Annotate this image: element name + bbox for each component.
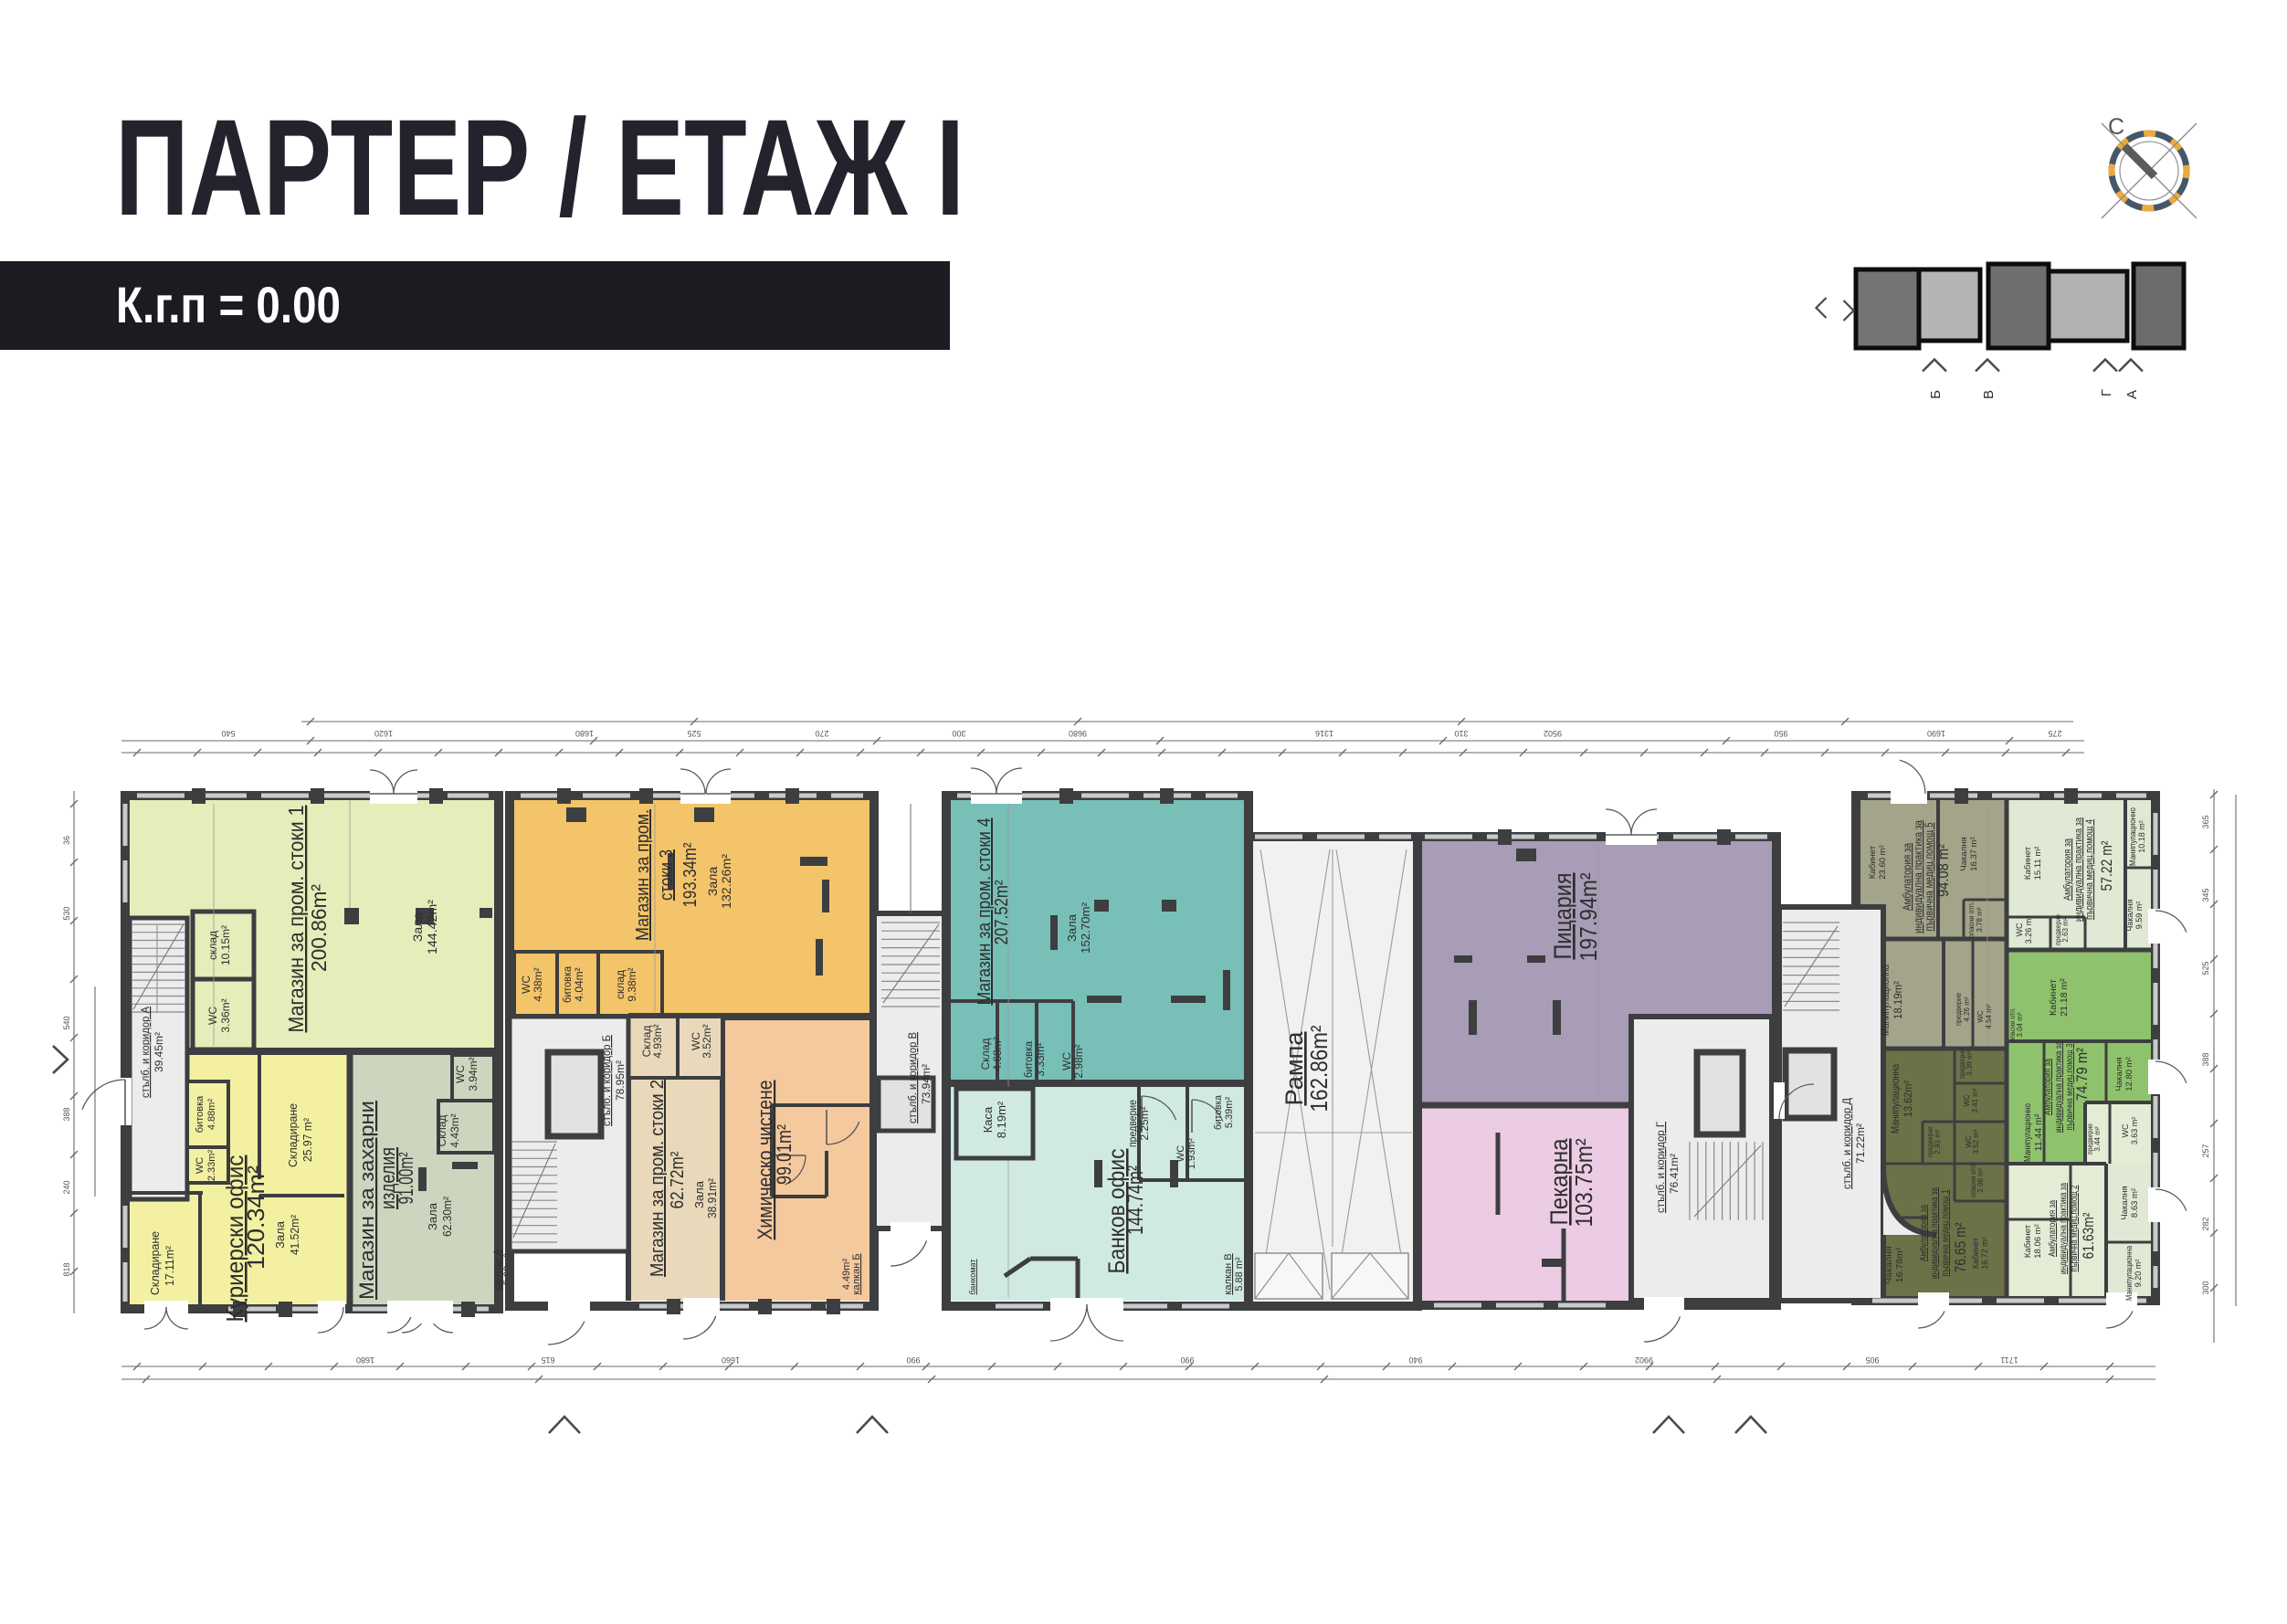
svg-text:300: 300 [2201, 1281, 2210, 1294]
svg-text:3.41 m²: 3.41 m² [1971, 1088, 1979, 1113]
svg-text:17.11m²: 17.11m² [163, 1245, 176, 1286]
svg-text:Б: Б [1928, 390, 1944, 399]
svg-text:61.63m²: 61.63m² [2080, 1212, 2097, 1259]
svg-text:WC: WC [1976, 1010, 1985, 1023]
svg-text:калкан Б: калкан Б [851, 1253, 862, 1294]
svg-text:Складиране: Складиране [148, 1231, 162, 1295]
svg-text:Рампа: Рампа [1281, 1031, 1308, 1106]
svg-text:Пекарна: Пекарна [1545, 1138, 1573, 1226]
svg-text:530: 530 [62, 906, 71, 920]
svg-text:16.72 m²: 16.72 m² [1980, 1237, 1989, 1270]
svg-text:индивидуална практика за: индивидуална практика за [2059, 1183, 2069, 1274]
svg-text:9.59 m²: 9.59 m² [2134, 902, 2144, 930]
svg-text:3.78 m²: 3.78 m² [1976, 907, 1984, 932]
svg-text:Зала: Зала [692, 1180, 706, 1208]
svg-text:270: 270 [815, 729, 828, 738]
svg-text:Г: Г [2099, 389, 2114, 396]
svg-text:94.08 m²: 94.08 m² [1934, 844, 1952, 897]
svg-text:Манипулационна: Манипулационна [1889, 1064, 1902, 1134]
svg-text:78.95m²: 78.95m² [614, 1060, 627, 1101]
svg-text:Кабинет: Кабинет [1971, 1238, 1980, 1269]
svg-text:540: 540 [62, 1016, 71, 1029]
svg-text:240: 240 [62, 1180, 71, 1194]
svg-text:стълб. и коридор А: стълб. и коридор А [139, 1007, 152, 1098]
svg-text:индивидуална практика за: индивидуална практика за [1913, 819, 1924, 933]
svg-text:К.г.п = 0.00: К.г.п = 0.00 [116, 276, 341, 333]
svg-text:Магазин за пром.: Магазин за пром. [633, 809, 653, 941]
svg-text:индивидуална практика за: индивидуална практика за [2054, 1041, 2064, 1133]
svg-text:WC: WC [1963, 1094, 1971, 1107]
svg-text:Магазин за пром. стоки 1: Магазин за пром. стоки 1 [284, 806, 308, 1033]
svg-text:индивидуална практика за: индивидуална практика за [1930, 1187, 1940, 1279]
svg-text:345: 345 [2201, 888, 2210, 902]
svg-text:10.15m²: 10.15m² [219, 925, 232, 965]
svg-text:74.79 m²: 74.79 m² [2073, 1048, 2091, 1101]
svg-text:ПАРТЕР / ЕТАЖ I: ПАРТЕР / ЕТАЖ I [115, 90, 964, 244]
svg-text:стълб. и коридор Д: стълб. и коридор Д [1840, 1098, 1853, 1189]
svg-text:12.80 m²: 12.80 m² [2124, 1057, 2134, 1091]
svg-text:193.34m²: 193.34m² [680, 842, 701, 907]
svg-text:първична медиц.помощ 4: първична медиц.помощ 4 [2084, 819, 2095, 920]
svg-text:WC: WC [2121, 1123, 2130, 1137]
svg-text:Амбулатория за: Амбулатория за [2042, 1059, 2053, 1115]
svg-text:4.43m²: 4.43m² [448, 1113, 461, 1147]
svg-text:4.38m²: 4.38m² [532, 967, 544, 1001]
svg-text:Чакалня: Чакалня [2114, 1057, 2124, 1091]
svg-text:91.00m²: 91.00m² [395, 1153, 417, 1205]
svg-text:300: 300 [952, 729, 965, 738]
svg-text:310: 310 [1454, 729, 1468, 738]
svg-text:битовка: битовка [561, 966, 574, 1003]
svg-text:3.52m²: 3.52m² [701, 1024, 713, 1058]
svg-text:Склад: Склад [979, 1039, 992, 1070]
svg-text:предверие: предверие [1955, 993, 1963, 1026]
svg-text:62.30m²: 62.30m² [440, 1196, 454, 1237]
svg-text:WC: WC [206, 1007, 219, 1025]
svg-text:73.94m²: 73.94m² [920, 1064, 933, 1104]
svg-text:WC: WC [1175, 1145, 1186, 1162]
svg-text:3.26 m²: 3.26 m² [2024, 916, 2033, 944]
svg-text:3.33m²: 3.33m² [1034, 1042, 1047, 1076]
svg-text:144.74m²: 144.74m² [1123, 1165, 1148, 1235]
svg-text:битовка: битовка [1213, 1094, 1224, 1130]
svg-text:Манипулационно: Манипулационно [2128, 807, 2137, 866]
svg-text:Амбулатория за: Амбулатория за [2062, 838, 2073, 901]
svg-text:36: 36 [62, 836, 71, 845]
svg-text:990: 990 [906, 1355, 920, 1365]
svg-text:Чакалня: Чакалня [1883, 1246, 1894, 1283]
svg-text:4.88m²: 4.88m² [206, 1099, 217, 1131]
svg-text:120.34m²: 120.34m² [242, 1165, 269, 1270]
svg-text:540: 540 [221, 729, 235, 738]
svg-text:275: 275 [2048, 729, 2061, 738]
svg-text:57.22 m²: 57.22 m² [2098, 840, 2115, 891]
svg-text:Магазин за пром. стоки 2: Магазин за пром. стоки 2 [648, 1080, 668, 1277]
svg-text:282: 282 [2201, 1217, 2210, 1230]
svg-text:257: 257 [2201, 1144, 2210, 1157]
svg-text:950: 950 [1774, 729, 1787, 738]
svg-text:38.91m²: 38.91m² [705, 1177, 719, 1218]
svg-text:Склад: Склад [436, 1115, 448, 1147]
svg-text:99.01m²: 99.01m² [773, 1124, 796, 1185]
svg-text:Манипулационна: Манипулационна [2124, 1246, 2134, 1301]
svg-text:WC: WC [454, 1065, 467, 1083]
svg-text:21.18 m²: 21.18 m² [2059, 978, 2070, 1017]
svg-text:8.19m²: 8.19m² [995, 1101, 1008, 1138]
svg-text:2.33m²: 2.33m² [206, 1150, 217, 1182]
svg-text:3.36m²: 3.36m² [219, 998, 232, 1032]
svg-text:76.65 m²: 76.65 m² [1952, 1222, 1969, 1272]
svg-text:А: А [2124, 390, 2140, 399]
svg-text:Зала: Зала [705, 867, 720, 896]
svg-text:3.44 m²: 3.44 m² [2093, 1126, 2102, 1151]
svg-text:банкомат: банкомат [968, 1259, 977, 1294]
svg-text:стоки 3: стоки 3 [657, 849, 677, 901]
svg-text:200.86m²: 200.86m² [307, 884, 331, 972]
svg-text:103.75m²: 103.75m² [1570, 1138, 1597, 1227]
svg-text:първична медиц.помощ 1: първична медиц.помощ 1 [1941, 1189, 1951, 1276]
svg-text:битовка: битовка [195, 1095, 206, 1133]
svg-text:Чакалня: Чакалня [1959, 837, 1969, 870]
svg-text:Зала: Зала [1065, 913, 1079, 942]
svg-text:WC: WC [520, 975, 532, 994]
svg-text:41.52m²: 41.52m² [288, 1214, 301, 1255]
svg-text:152.70m²: 152.70m² [1079, 902, 1092, 954]
svg-text:битовка: битовка [1022, 1041, 1035, 1078]
svg-text:Амбулатория за: Амбулатория за [1918, 1205, 1929, 1261]
svg-text:4.54 m²: 4.54 m² [1985, 1004, 1993, 1028]
svg-text:4.93m²: 4.93m² [651, 1024, 664, 1058]
svg-text:Кабинет: Кабинет [2023, 846, 2033, 880]
svg-text:2.63 m²: 2.63 m² [2061, 917, 2070, 942]
svg-text:9502: 9502 [1544, 729, 1562, 738]
svg-text:1620: 1620 [374, 729, 393, 738]
svg-text:стълб. и коридор В: стълб. и коридор В [906, 1032, 919, 1123]
svg-text:WC: WC [195, 1157, 206, 1174]
svg-text:1660: 1660 [722, 1355, 740, 1365]
svg-text:3.63 m²: 3.63 m² [2130, 1117, 2139, 1145]
svg-text:1.93m²: 1.93m² [1186, 1138, 1197, 1170]
svg-text:990: 990 [1180, 1355, 1194, 1365]
svg-text:1680: 1680 [356, 1355, 374, 1365]
svg-text:Амбулатория за: Амбулатория за [1902, 842, 1913, 911]
svg-text:905: 905 [1865, 1355, 1879, 1365]
svg-text:Зала: Зала [426, 1202, 439, 1230]
svg-text:5.88 m²: 5.88 m² [1234, 1257, 1245, 1292]
svg-text:Манипулационна: Манипулационна [1879, 965, 1892, 1036]
svg-text:615: 615 [541, 1355, 554, 1365]
svg-text:Зала: Зала [273, 1220, 287, 1249]
svg-text:склад: склад [614, 970, 627, 999]
svg-text:1316: 1316 [1315, 729, 1333, 738]
svg-text:162.86m²: 162.86m² [1305, 1025, 1333, 1112]
svg-text:18.19m²: 18.19m² [1892, 981, 1904, 1019]
svg-text:18.06 m²: 18.06 m² [2033, 1224, 2043, 1259]
svg-text:16.37 m²: 16.37 m² [1969, 837, 1979, 871]
svg-text:1680: 1680 [575, 729, 594, 738]
svg-text:132.26m²: 132.26m² [719, 854, 733, 909]
svg-text:2.25m²: 2.25m² [1138, 1106, 1151, 1140]
svg-text:4.68m²: 4.68m² [991, 1037, 1004, 1070]
svg-text:предверие: предверие [1126, 1100, 1139, 1147]
svg-text:Пицария: Пицария [1549, 873, 1576, 960]
svg-text:индивидуална практика за: индивидуална практика за [2073, 817, 2084, 922]
svg-text:9.20 m²: 9.20 m² [2134, 1260, 2143, 1288]
svg-text:39.45m²: 39.45m² [153, 1032, 165, 1072]
svg-text:9902: 9902 [1635, 1355, 1653, 1365]
svg-text:WC: WC [2015, 923, 2024, 936]
svg-text:9.38m²: 9.38m² [626, 967, 638, 1001]
svg-text:76.41m²: 76.41m² [1668, 1154, 1681, 1194]
svg-text:4.26 m²: 4.26 m² [1963, 997, 1971, 1021]
svg-text:опасни отп.: опасни отп. [1967, 902, 1976, 938]
svg-text:525: 525 [687, 729, 701, 738]
svg-text:1690: 1690 [1927, 729, 1945, 738]
svg-text:В: В [1981, 390, 1997, 399]
svg-text:525: 525 [2201, 961, 2210, 975]
svg-text:склад: склад [206, 931, 219, 960]
svg-text:стълб. и коридор Г: стълб. и коридор Г [1654, 1122, 1667, 1213]
svg-text:8.63 m²: 8.63 m² [2130, 1188, 2140, 1218]
svg-text:3.04 m²: 3.04 m² [2016, 1012, 2024, 1037]
svg-text:11.44 m²: 11.44 m² [2033, 1113, 2044, 1151]
svg-text:C: C [2108, 114, 2124, 140]
svg-text:5.39m²: 5.39m² [1224, 1097, 1235, 1129]
svg-text:първична медиц.помощ 2: първична медиц.помощ 2 [2070, 1185, 2080, 1271]
svg-text:818: 818 [62, 1262, 71, 1276]
svg-text:3.94m²: 3.94m² [467, 1057, 480, 1091]
svg-text:Каса: Каса [981, 1106, 995, 1133]
svg-text:2.93 m²: 2.93 m² [1934, 1129, 1942, 1154]
svg-text:Кабинет: Кабинет [2023, 1224, 2033, 1258]
svg-text:3.52 m²: 3.52 m² [1972, 1129, 1980, 1154]
svg-text:Кабинет: Кабинет [2048, 979, 2059, 1016]
svg-text:62.72m²: 62.72m² [668, 1151, 688, 1208]
svg-text:2.98 m²: 2.98 m² [1976, 1167, 1985, 1192]
svg-text:Зала: Зала [410, 912, 425, 942]
svg-text:2.98m²: 2.98m² [1072, 1044, 1085, 1078]
svg-text:71.22m²: 71.22m² [1854, 1123, 1867, 1164]
svg-text:Амбулатория за: Амбулатория за [2047, 1200, 2058, 1257]
svg-text:WC: WC [1060, 1052, 1073, 1070]
svg-text:стълб. и коридор Б: стълб. и коридор Б [600, 1035, 613, 1126]
svg-text:9680: 9680 [1069, 729, 1087, 738]
svg-text:13.62m²: 13.62m² [1902, 1081, 1914, 1117]
svg-text:23.60 m²: 23.60 m² [1878, 845, 1888, 880]
svg-text:197.94m²: 197.94m² [1575, 872, 1602, 961]
svg-text:144.42m²: 144.42m² [425, 900, 439, 954]
svg-text:365: 365 [2201, 815, 2210, 828]
svg-text:25.97 m²: 25.97 m² [300, 1117, 314, 1162]
svg-text:1711: 1711 [2000, 1355, 2018, 1365]
svg-text:Чакалня: Чакалня [2120, 1186, 2130, 1219]
svg-text:207.52m²: 207.52m² [992, 880, 1012, 944]
svg-text:Чакалня: Чакалня [2125, 899, 2134, 931]
svg-text:388: 388 [2201, 1052, 2210, 1066]
svg-text:4.04m²: 4.04m² [573, 967, 585, 1001]
svg-text:калкан В: калкан В [1223, 1253, 1234, 1294]
svg-text:10.18 m²: 10.18 m² [2137, 820, 2146, 853]
svg-text:388: 388 [62, 1107, 71, 1121]
svg-text:Магазин за захарни: Магазин за захарни [355, 1101, 378, 1300]
svg-text:Складиране: Складиране [286, 1103, 300, 1167]
svg-text:Манипулационно: Манипулационно [2022, 1103, 2033, 1162]
svg-text:16.78m²: 16.78m² [1894, 1247, 1905, 1282]
svg-text:Кабинет: Кабинет [1868, 845, 1878, 879]
svg-text:940: 940 [1408, 1355, 1422, 1365]
svg-text:15.11 m²: 15.11 m² [2033, 847, 2043, 881]
svg-text:3.39 m²: 3.39 m² [1966, 1050, 1974, 1075]
